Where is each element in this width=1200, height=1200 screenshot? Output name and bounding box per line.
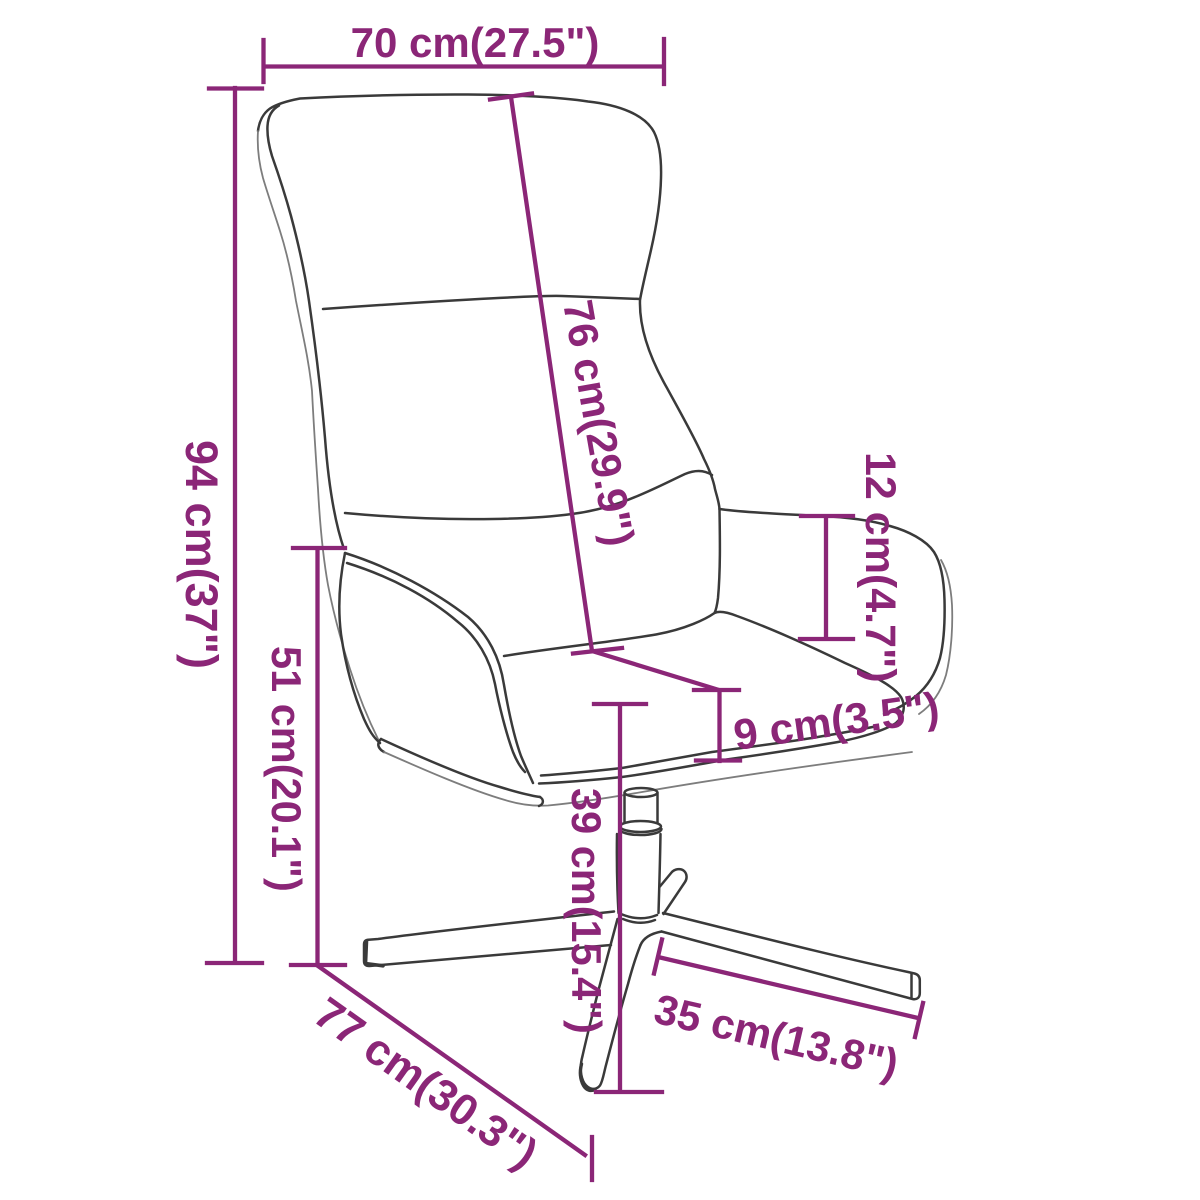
svg-text:39 cm(15.4"): 39 cm(15.4") [563, 788, 610, 1034]
svg-text:94 cm(37"): 94 cm(37") [176, 440, 227, 669]
svg-text:12 cm(4.7"): 12 cm(4.7") [856, 452, 904, 683]
svg-text:51 cm(20.1"): 51 cm(20.1") [263, 646, 310, 892]
svg-text:70 cm(27.5"): 70 cm(27.5") [351, 19, 600, 66]
